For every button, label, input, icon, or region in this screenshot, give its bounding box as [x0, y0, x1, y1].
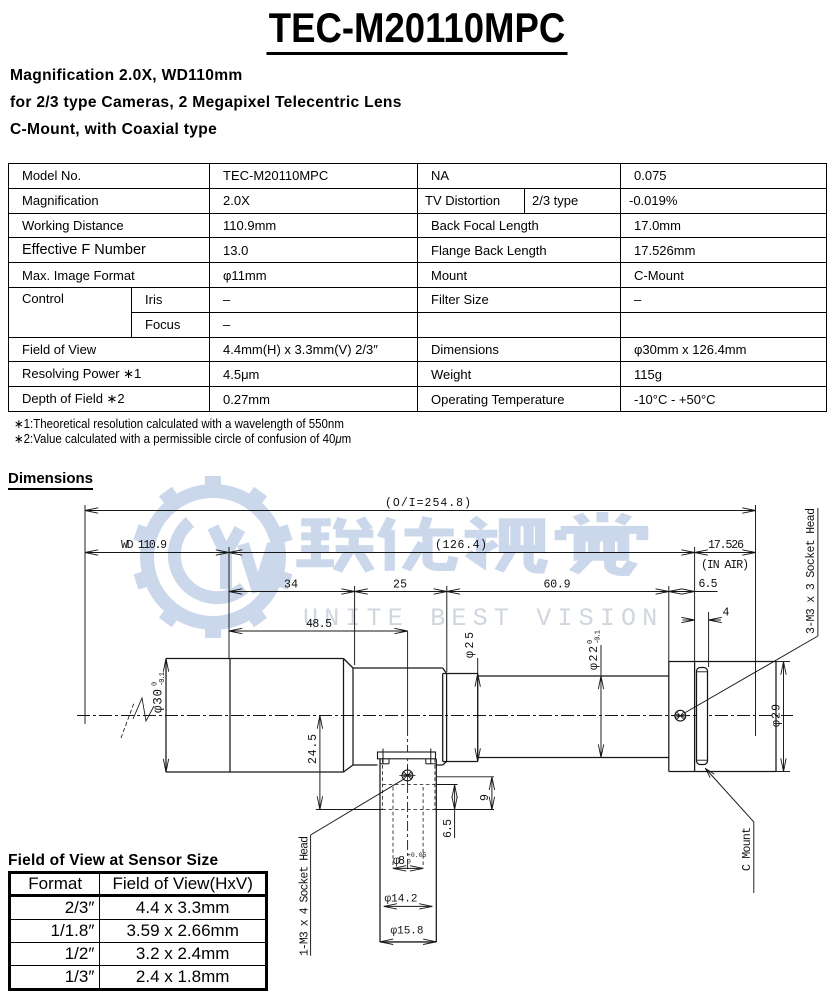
svg-text:φ25: φ25 — [464, 632, 477, 658]
svg-text:φ14.2: φ14.2 — [385, 894, 418, 906]
svg-text:0: 0 — [407, 859, 411, 866]
svg-text:17.526: 17.526 — [708, 539, 744, 552]
svg-text:C Mount: C Mount — [741, 827, 754, 871]
svg-text:4: 4 — [723, 607, 730, 620]
svg-text:φ30: φ30 — [152, 689, 166, 713]
svg-text:(O/I=254.8): (O/I=254.8) — [385, 497, 471, 510]
svg-text:25: 25 — [393, 579, 407, 592]
svg-text:WD 110.9: WD 110.9 — [121, 539, 167, 552]
svg-text:φ8: φ8 — [393, 855, 405, 868]
svg-text:3-M3 x 3 Socket Head: 3-M3 x 3 Socket Head — [805, 508, 818, 634]
svg-text:(IN AIR): (IN AIR) — [701, 559, 749, 572]
svg-text:-0.1: -0.1 — [159, 672, 167, 686]
svg-text:UNITE BEST VISION: UNITE BEST VISION — [303, 604, 663, 633]
svg-text:60.9: 60.9 — [544, 579, 571, 592]
svg-text:1-M3 x 4 Socket Head: 1-M3 x 4 Socket Head — [299, 836, 312, 956]
svg-text:48.5: 48.5 — [306, 618, 332, 631]
svg-text:24.5: 24.5 — [307, 734, 320, 764]
svg-text:34: 34 — [284, 579, 298, 592]
svg-text:φ15.8: φ15.8 — [391, 926, 424, 938]
svg-text:6.5: 6.5 — [442, 819, 455, 838]
svg-text:9: 9 — [479, 794, 492, 801]
svg-text:(126.4): (126.4) — [435, 539, 487, 552]
svg-text:φ29: φ29 — [771, 704, 784, 727]
svg-text:-0.1: -0.1 — [595, 630, 603, 644]
svg-text:φ22: φ22 — [588, 646, 601, 670]
svg-text:6.5: 6.5 — [699, 578, 718, 591]
